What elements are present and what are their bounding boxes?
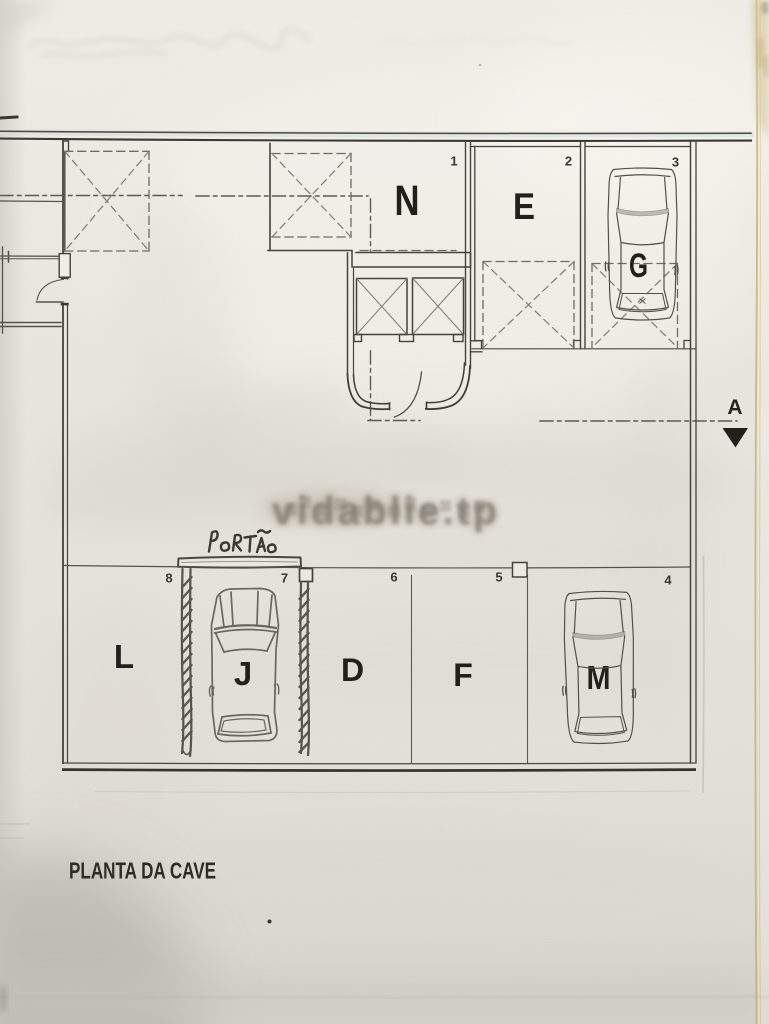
svg-text:A: A <box>727 396 742 419</box>
svg-text:J: J <box>234 655 252 692</box>
svg-text:6: 6 <box>390 570 397 585</box>
svg-text:N: N <box>395 178 420 225</box>
svg-text:F: F <box>453 657 473 693</box>
svg-text:E: E <box>513 186 535 227</box>
svg-text:L: L <box>114 638 134 675</box>
svg-text:8: 8 <box>165 571 172 586</box>
svg-text:2: 2 <box>565 154 572 169</box>
svg-text:PLANTA DA CAVE: PLANTA DA CAVE <box>69 858 216 884</box>
svg-text:D: D <box>341 652 364 688</box>
svg-text:G: G <box>629 247 648 285</box>
svg-text:7: 7 <box>281 571 288 586</box>
svg-text:4: 4 <box>664 573 672 588</box>
svg-text:5: 5 <box>495 570 502 585</box>
svg-text:M: M <box>587 659 611 696</box>
svg-text:1: 1 <box>450 154 457 169</box>
svg-text:3: 3 <box>672 155 679 170</box>
